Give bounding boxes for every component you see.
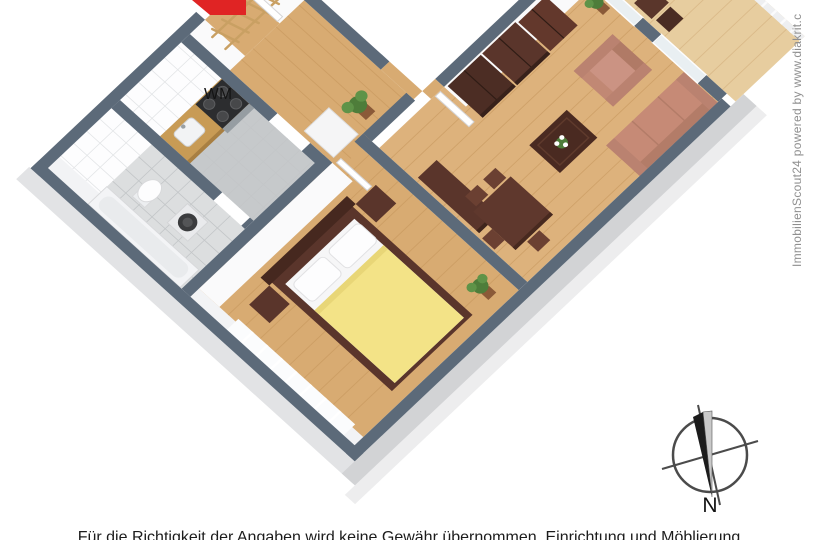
watermark: ImmobilienScout24 powered by www.diakrit…	[790, 14, 804, 267]
floorplan-canvas: WM N ImmobilienScout24 powered by www.di…	[0, 0, 818, 540]
floorplan-page: WM N ImmobilienScout24 powered by www.di…	[0, 0, 818, 540]
compass-north-label: N	[702, 494, 717, 517]
north-compass: N	[662, 405, 758, 517]
wm-label: WM	[204, 86, 233, 103]
red-logo-arrow	[192, 0, 246, 15]
disclaimer: Für die Richtigkeit der Angaben wird kei…	[78, 529, 741, 540]
